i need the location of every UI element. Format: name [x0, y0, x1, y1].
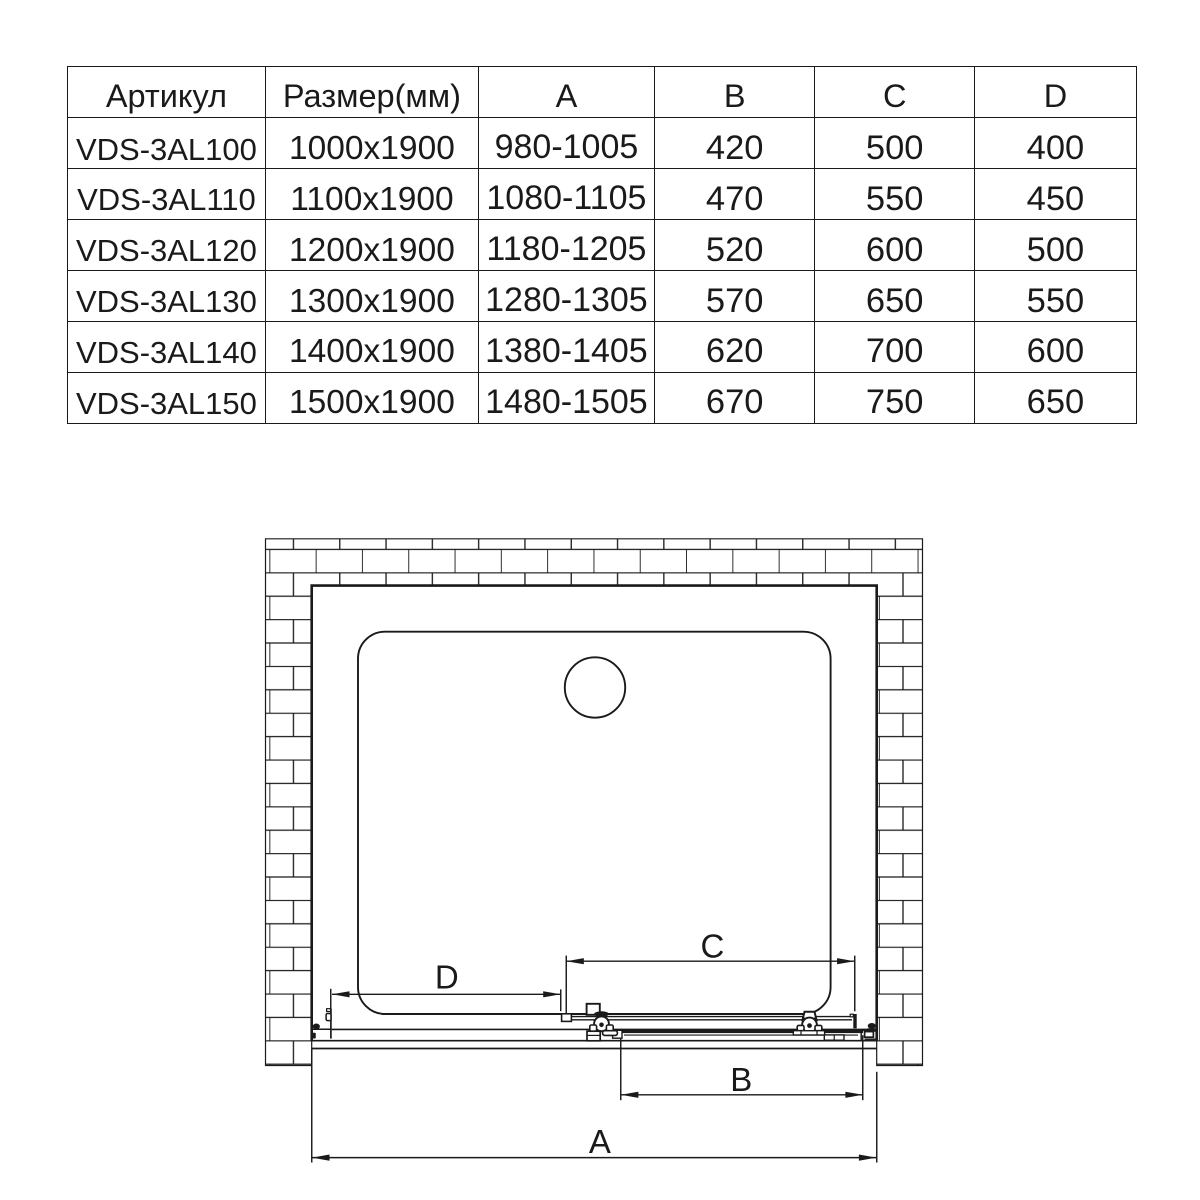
svg-text:C: C	[700, 927, 724, 964]
svg-text:D: D	[435, 958, 459, 995]
svg-text:B: B	[730, 1061, 752, 1098]
svg-text:A: A	[589, 1123, 611, 1160]
